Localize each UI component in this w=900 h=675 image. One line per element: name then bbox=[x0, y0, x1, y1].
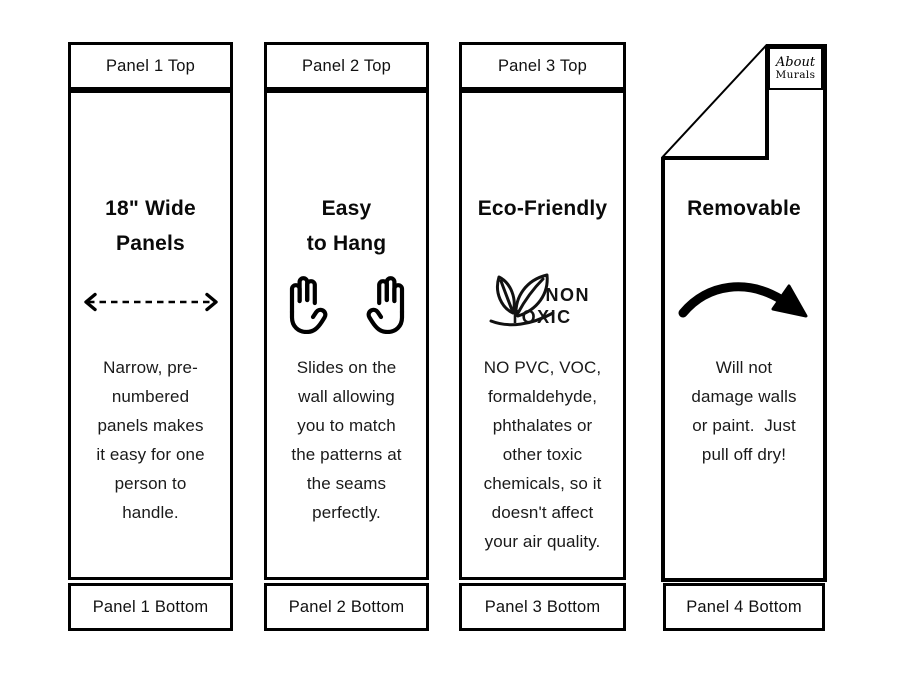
panel-2-bottom-label-box: Panel 2 Bottom bbox=[264, 583, 429, 631]
panel-3-bottom-label-box: Panel 3 Bottom bbox=[459, 583, 626, 631]
panel-4-icon-row bbox=[663, 261, 825, 343]
panel-1-bottom-label: Panel 1 Bottom bbox=[93, 598, 209, 617]
brand-logo: About Murals bbox=[768, 47, 823, 90]
panel-4-description: Will not damage walls or paint. Just pul… bbox=[663, 353, 825, 469]
panel-2-top-label: Panel 2 Top bbox=[302, 57, 391, 76]
non-toxic-badge: NON TOXIC bbox=[485, 265, 601, 339]
panel-3-bottom-label: Panel 3 Bottom bbox=[485, 598, 601, 617]
panel-1-description: Narrow, pre- numbered panels makes it ea… bbox=[71, 353, 230, 527]
panel-1-top-label-box: Panel 1 Top bbox=[68, 42, 233, 90]
curved-arrow-icon bbox=[678, 276, 810, 328]
panel-2-icon-row bbox=[267, 261, 426, 343]
panel-1-icon-row bbox=[71, 261, 230, 343]
panel-3-top-label: Panel 3 Top bbox=[498, 57, 587, 76]
panel-4: About Murals Removable Will not damage w… bbox=[663, 42, 825, 631]
panel-3-description: NO PVC, VOC, formaldehyde, phthalates or… bbox=[462, 353, 623, 556]
panel-3-top-label-box: Panel 3 Top bbox=[459, 42, 626, 90]
panel-3-body: Eco-Friendly NON TOXIC NO P bbox=[459, 90, 626, 580]
brand-logo-serif-text: Murals bbox=[776, 70, 816, 81]
panel-2-description: Slides on the wall allowing you to match… bbox=[267, 353, 426, 527]
infographic-canvas: Panel 1 Top 18" Wide Panels Narrow, pre-… bbox=[0, 0, 900, 675]
right-hand-icon bbox=[360, 270, 410, 334]
non-toxic-text-line2: TOXIC bbox=[510, 307, 572, 328]
panel-4-bottom-label-box: Panel 4 Bottom bbox=[663, 583, 825, 631]
panel-1-title: 18" Wide Panels bbox=[71, 191, 230, 261]
panel-1-body: 18" Wide Panels Narrow, pre- numbered pa… bbox=[68, 90, 233, 580]
panel-1: Panel 1 Top 18" Wide Panels Narrow, pre-… bbox=[68, 42, 233, 631]
panel-2-body: Easy to Hang Slides on the bbox=[264, 90, 429, 580]
panel-3-title: Eco-Friendly bbox=[462, 191, 623, 261]
panel-1-bottom-label-box: Panel 1 Bottom bbox=[68, 583, 233, 631]
panel-4-body: About Murals Removable Will not damage w… bbox=[663, 42, 825, 580]
non-toxic-text-line1: NON bbox=[546, 285, 591, 306]
panel-2-top-label-box: Panel 2 Top bbox=[264, 42, 429, 90]
panel-4-bottom-label: Panel 4 Bottom bbox=[686, 598, 802, 617]
panel-2: Panel 2 Top Easy to Hang bbox=[264, 42, 429, 631]
brand-logo-script-text: About bbox=[776, 56, 815, 69]
left-hand-icon bbox=[284, 270, 334, 334]
dashed-width-arrow-icon bbox=[75, 292, 227, 312]
panel-1-top-label: Panel 1 Top bbox=[106, 57, 195, 76]
panel-2-bottom-label: Panel 2 Bottom bbox=[289, 598, 405, 617]
panel-3-icon-row: NON TOXIC bbox=[462, 261, 623, 343]
panel-3: Panel 3 Top Eco-Friendly NON T bbox=[459, 42, 626, 631]
panel-2-title: Easy to Hang bbox=[267, 191, 426, 261]
panel-4-title: Removable bbox=[663, 191, 825, 261]
